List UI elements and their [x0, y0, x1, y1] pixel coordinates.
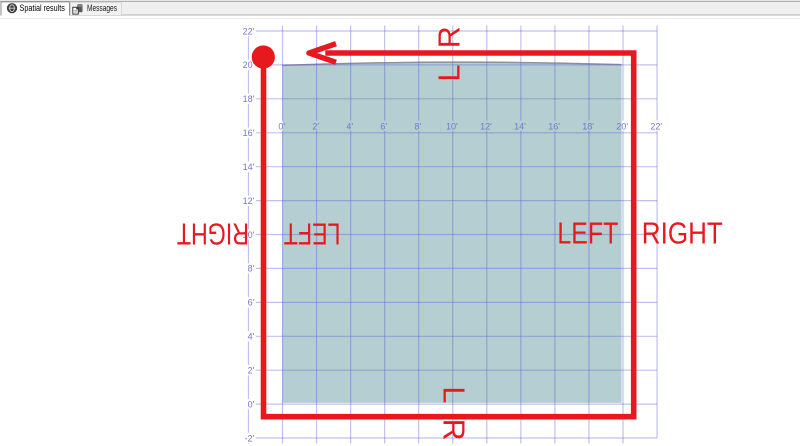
svg-text:8': 8' [248, 264, 255, 274]
svg-text:R: R [437, 419, 471, 441]
svg-text:Spatial results: Spatial results [20, 3, 66, 13]
svg-text:6': 6' [248, 298, 255, 308]
svg-text:0': 0' [248, 399, 255, 409]
svg-text:LEFT: LEFT [557, 217, 618, 251]
svg-text:RIGHT: RIGHT [642, 217, 723, 251]
svg-text:10': 10' [446, 122, 458, 132]
svg-text:12': 12' [480, 122, 492, 132]
svg-text:Messages: Messages [87, 3, 117, 13]
svg-text:8': 8' [415, 122, 422, 132]
svg-text:2': 2' [248, 365, 255, 375]
svg-text:16': 16' [243, 128, 255, 138]
svg-text:14': 14' [514, 122, 526, 132]
svg-text:4': 4' [248, 332, 255, 342]
svg-text:-2': -2' [245, 433, 255, 443]
svg-text:20': 20' [616, 122, 628, 132]
svg-text:14': 14' [243, 162, 255, 172]
svg-text:RIGHT: RIGHT [177, 217, 249, 251]
svg-text:R: R [433, 26, 467, 48]
svg-text:16': 16' [548, 122, 560, 132]
svg-text:4': 4' [346, 122, 353, 132]
svg-text:18': 18' [243, 94, 255, 104]
svg-text:L: L [437, 386, 471, 403]
svg-text:6': 6' [380, 122, 387, 132]
svg-text:LEFT: LEFT [284, 217, 341, 251]
svg-text:L: L [433, 65, 467, 82]
svg-text:2': 2' [312, 122, 319, 132]
svg-text:12': 12' [243, 196, 255, 206]
svg-text:0': 0' [278, 122, 285, 132]
svg-text:18': 18' [582, 122, 594, 132]
svg-text:22': 22' [650, 122, 662, 132]
svg-text:22': 22' [243, 26, 255, 36]
